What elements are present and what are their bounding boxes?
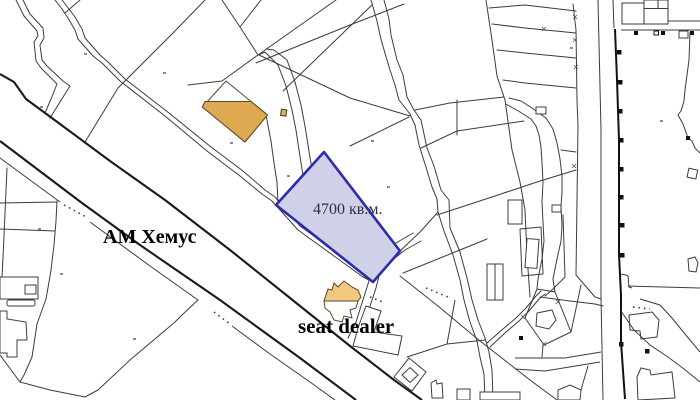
- svg-text:4700 кв.м.: 4700 кв.м.: [313, 201, 382, 218]
- svg-text:seat dealer: seat dealer: [298, 314, 394, 338]
- svg-text:АМ Хемус: АМ Хемус: [103, 226, 197, 248]
